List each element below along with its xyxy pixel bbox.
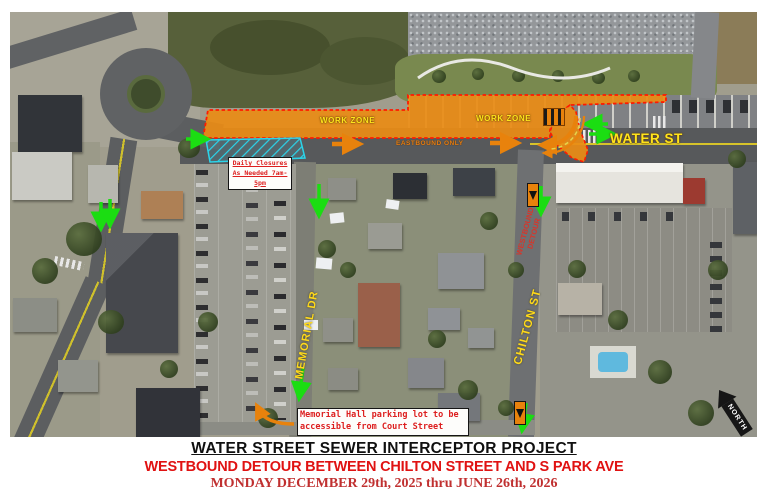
project-title: WATER STREET SEWER INTERCEPTOR PROJECT bbox=[0, 440, 768, 458]
eastbound-only-label: EASTBOUND ONLY bbox=[396, 140, 463, 147]
north-arrow-shaft: NORTH bbox=[721, 399, 752, 437]
memorial-hall-callout: Memorial Hall parking lot to be accessib… bbox=[297, 408, 469, 436]
work-zone-label-west: WORK ZONE bbox=[320, 116, 375, 125]
parking-access-arrow bbox=[259, 410, 294, 424]
water-st-label: WATER ST bbox=[610, 131, 683, 146]
work-zone-label-east: WORK ZONE bbox=[476, 114, 531, 123]
orange-flow-arrows bbox=[259, 116, 584, 424]
construction-equipment bbox=[543, 108, 565, 126]
work-zone-polygon bbox=[203, 95, 666, 138]
down-arrow-icon bbox=[516, 409, 524, 418]
aerial-map: WORK ZONE WORK ZONE EASTBOUND ONLY WATER… bbox=[10, 12, 757, 437]
memorial-hall-line1: Memorial Hall parking lot to be bbox=[300, 410, 466, 422]
date-range: MONDAY DECEMBER 29th, 2025 thru JUNE 26t… bbox=[0, 476, 768, 492]
north-label: NORTH bbox=[726, 403, 748, 432]
detour-subtitle: WESTBOUND DETOUR BETWEEN CHILTON STREET … bbox=[0, 459, 768, 475]
daily-closures-line2: As Needed 7am-5pm bbox=[229, 169, 291, 189]
park-walking-path bbox=[418, 60, 610, 78]
detour-sign bbox=[514, 401, 526, 425]
map-overlay-graphics bbox=[10, 12, 757, 437]
daily-closures-callout: Daily Closures As Needed 7am-5pm bbox=[228, 157, 292, 190]
project-detour-notice: WORK ZONE WORK ZONE EASTBOUND ONLY WATER… bbox=[0, 0, 768, 497]
green-detour-arrows bbox=[101, 124, 608, 424]
daily-closures-line1: Daily Closures bbox=[229, 159, 291, 169]
footer: WATER STREET SEWER INTERCEPTOR PROJECT W… bbox=[0, 437, 768, 497]
memorial-hall-line2: accessible from Court Street bbox=[300, 422, 466, 434]
